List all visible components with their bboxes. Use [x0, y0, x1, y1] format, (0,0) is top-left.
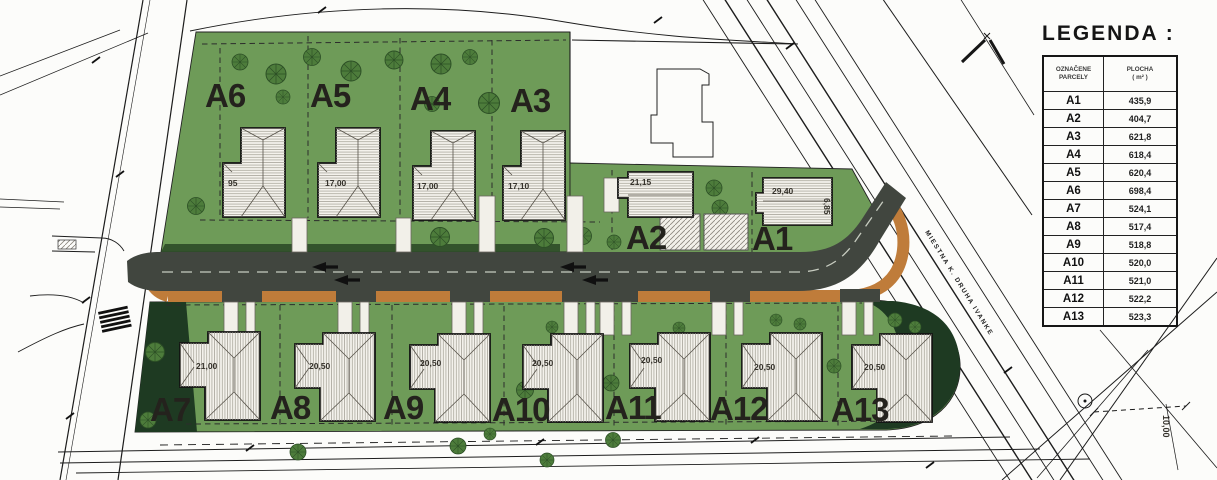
legend-panel: LEGENDA : OZNAČENEPARCELY PLOCHA( m² ) A…	[1042, 22, 1194, 327]
parcel-label-a8: A8	[270, 389, 311, 426]
parcel-label-a2: A2	[626, 219, 667, 256]
parcel-label-a11: A11	[605, 389, 661, 426]
parcel-area-cell: 620,4	[1103, 164, 1177, 182]
parcel-area-cell: 520,0	[1103, 254, 1177, 272]
parcel-label-a3: A3	[510, 82, 551, 119]
parcel-id-cell: A10	[1043, 254, 1103, 272]
legend-row: A4618,4	[1043, 146, 1177, 164]
legend-row: A2404,7	[1043, 110, 1177, 128]
dim-a13: 20,50	[864, 362, 886, 372]
dim-a12: 20,50	[754, 362, 776, 372]
parcel-id-cell: A1	[1043, 92, 1103, 110]
house-a1	[756, 178, 832, 225]
parcel-area-cell: 621,8	[1103, 128, 1177, 146]
parcel-area-cell: 404,7	[1103, 110, 1177, 128]
dim-a11: 20,50	[641, 355, 663, 365]
parcel-id-cell: A12	[1043, 290, 1103, 308]
legend-row: A13523,3	[1043, 308, 1177, 327]
dim-a5: 17,00	[325, 178, 347, 188]
parcel-id-cell: A3	[1043, 128, 1103, 146]
parcel-label-a9: A9	[383, 389, 424, 426]
legend-header-area: PLOCHA( m² )	[1103, 56, 1177, 92]
parcel-id-cell: A11	[1043, 272, 1103, 290]
parcel-id-cell: A6	[1043, 182, 1103, 200]
dim-a1-side: 6,85	[822, 198, 832, 215]
legend-row: A8517,4	[1043, 218, 1177, 236]
dim-a8: 20,50	[309, 361, 331, 371]
parcel-area-cell: 698,4	[1103, 182, 1177, 200]
legend-header-row: OZNAČENEPARCELY PLOCHA( m² )	[1043, 56, 1177, 92]
parcel-label-a5: A5	[310, 77, 351, 114]
parcel-id-cell: A5	[1043, 164, 1103, 182]
legend-title: LEGENDA :	[1042, 22, 1194, 46]
legend-row: A9518,8	[1043, 236, 1177, 254]
parcel-area-cell: 524,1	[1103, 200, 1177, 218]
legend-row: A3621,8	[1043, 128, 1177, 146]
parcel-area-cell: 618,4	[1103, 146, 1177, 164]
legend-table: OZNAČENEPARCELY PLOCHA( m² ) A1435,9 A24…	[1042, 55, 1178, 327]
parcel-label-a6: A6	[205, 77, 246, 114]
legend-row: A12522,2	[1043, 290, 1177, 308]
parcel-id-cell: A9	[1043, 236, 1103, 254]
legend-row: A6698,4	[1043, 182, 1177, 200]
site-plan-drawing: A6 A5 A4 A3 A2 A1 A7 A8 A9 A10 A11 A12 A…	[0, 0, 1217, 480]
parcel-area-cell: 435,9	[1103, 92, 1177, 110]
legend-row: A7524,1	[1043, 200, 1177, 218]
legend-row: A1435,9	[1043, 92, 1177, 110]
dim-a4: 17,00	[417, 181, 439, 191]
parcel-area-cell: 517,4	[1103, 218, 1177, 236]
parcel-label-a7: A7	[150, 391, 190, 428]
right-dimension: 10,00	[1161, 415, 1171, 438]
parcel-area-cell: 523,3	[1103, 308, 1177, 327]
dim-a6: 95	[228, 178, 238, 188]
parcel-label-a1: A1	[752, 220, 793, 257]
parcel-label-a13: A13	[831, 391, 889, 428]
site-plan-page: A6 A5 A4 A3 A2 A1 A7 A8 A9 A10 A11 A12 A…	[0, 0, 1217, 480]
dim-a2: 21,15	[630, 177, 652, 187]
parcel-label-a12: A12	[710, 390, 768, 427]
parcel-id-cell: A2	[1043, 110, 1103, 128]
legend-header-parcel: OZNAČENEPARCELY	[1043, 56, 1103, 92]
dim-a10: 20,50	[532, 358, 554, 368]
legend-row: A10520,0	[1043, 254, 1177, 272]
dim-a9: 20,50	[420, 358, 442, 368]
parcel-area-cell: 518,8	[1103, 236, 1177, 254]
parcel-id-cell: A13	[1043, 308, 1103, 327]
dim-a7: 21,00	[196, 361, 218, 371]
dim-a3: 17,10	[508, 181, 530, 191]
parcel-id-cell: A7	[1043, 200, 1103, 218]
parcel-id-cell: A8	[1043, 218, 1103, 236]
legend-row: A5620,4	[1043, 164, 1177, 182]
dim-a1: 29,40	[772, 186, 794, 196]
parcel-label-a10: A10	[492, 391, 550, 428]
parcel-label-a4: A4	[410, 80, 452, 117]
hedge-strip	[161, 244, 560, 252]
parcel-area-cell: 522,2	[1103, 290, 1177, 308]
parcel-id-cell: A4	[1043, 146, 1103, 164]
parcel-area-cell: 521,0	[1103, 272, 1177, 290]
legend-row: A11521,0	[1043, 272, 1177, 290]
